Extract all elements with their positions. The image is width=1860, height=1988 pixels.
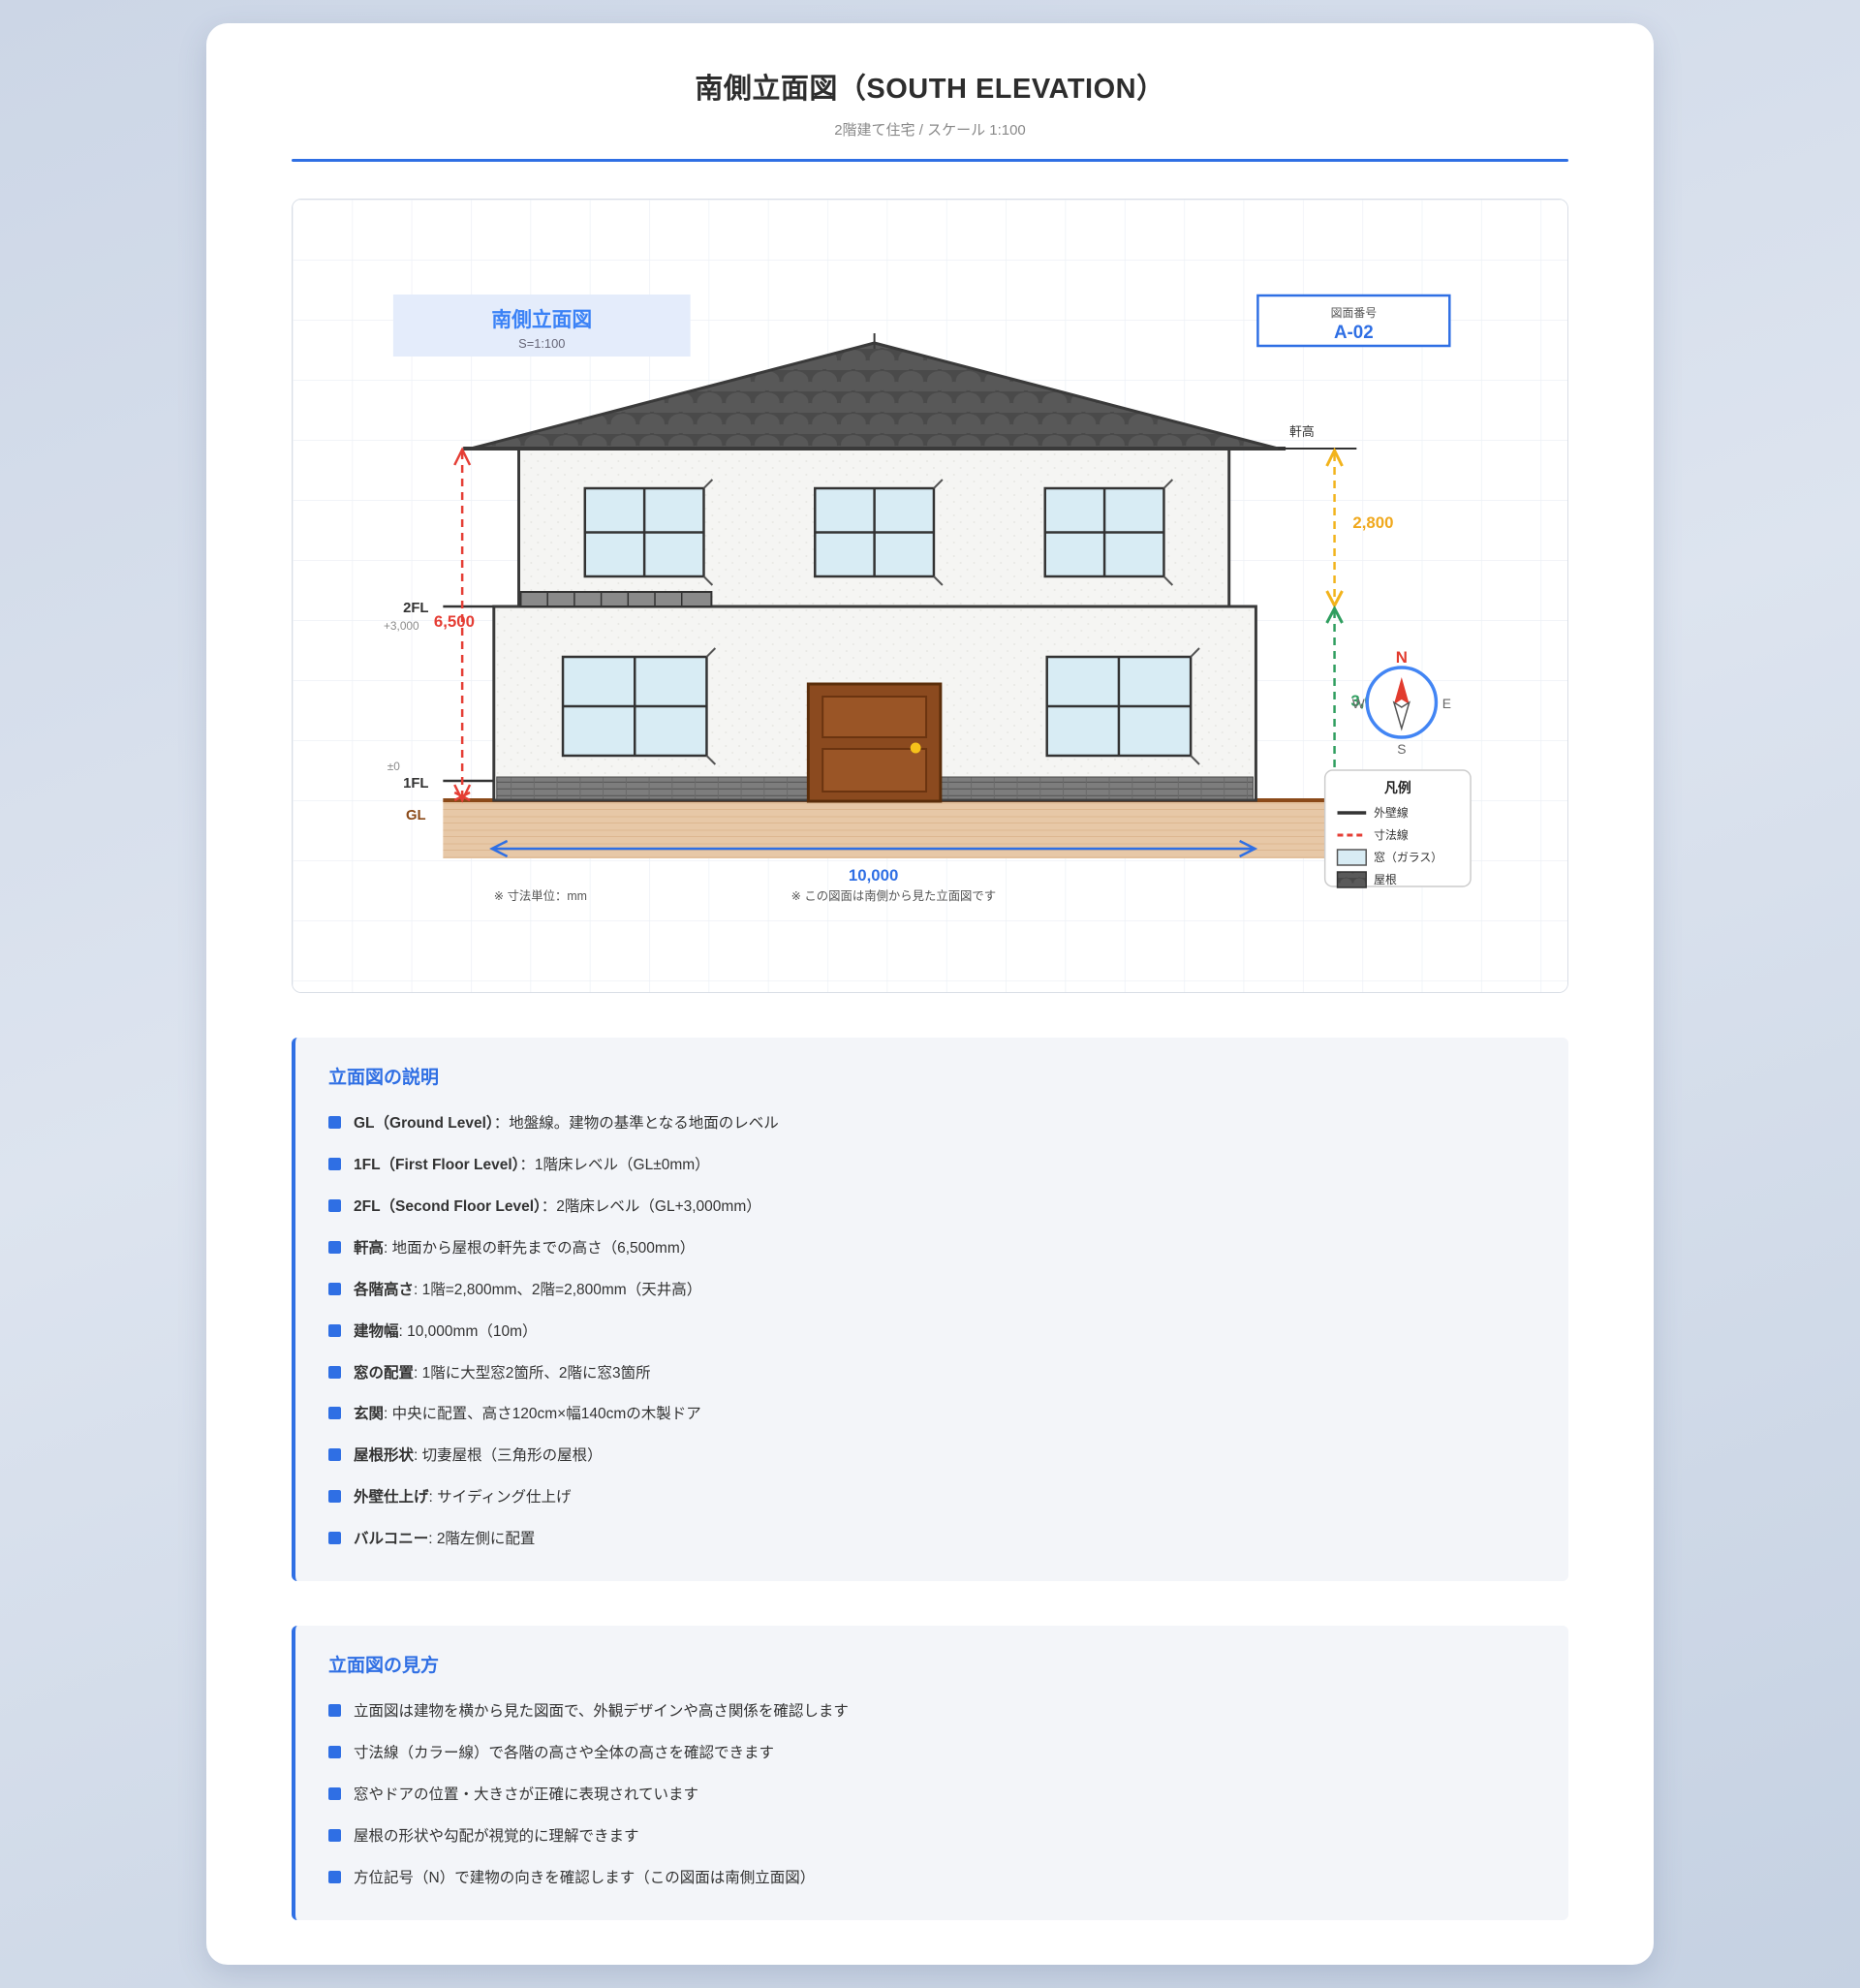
fl1-offset: ±0 xyxy=(387,760,400,773)
list-item: 窓やドアの位置・大きさが正確に表現されています xyxy=(328,1786,1535,1806)
document-card: 南側立面図（SOUTH ELEVATION） 2階建て住宅 / スケール 1:1… xyxy=(206,23,1654,1965)
window-1f-right xyxy=(1047,648,1199,764)
list-item: 1FL（First Floor Level）：1階床レベル（GL±0mm） xyxy=(328,1156,1535,1176)
list-item: 屋根形状: 切妻屋根（三角形の屋根） xyxy=(328,1446,1535,1467)
bullet-icon xyxy=(328,1283,341,1295)
drawing-number-box: 図面番号 A-02 xyxy=(1257,295,1449,346)
note-view: ※ この図面は南側から見た立面図です xyxy=(791,888,996,903)
section-elevation-description: 立面図の説明 GL（Ground Level）：地盤線。建物の基準となる地面のレ… xyxy=(292,1038,1568,1581)
window-2f-right xyxy=(1045,480,1173,585)
list-item: 軒高: 地面から屋根の軒先までの高さ（6,500mm） xyxy=(328,1239,1535,1259)
gl-label: GL xyxy=(406,807,426,823)
balcony-railing xyxy=(520,592,711,606)
compass-south: S xyxy=(1397,741,1406,757)
list-item: 寸法線（カラー線）で各階の高さや全体の高さを確認できます xyxy=(328,1744,1535,1764)
section-title: 立面図の説明 xyxy=(328,1063,1535,1089)
total-height-value: 6,500 xyxy=(434,612,475,631)
list-item: バルコニー: 2階左側に配置 xyxy=(328,1530,1535,1550)
window-2f-left xyxy=(585,480,713,585)
drawing-label-scale: S=1:100 xyxy=(518,336,565,351)
page-title: 南側立面図（SOUTH ELEVATION） xyxy=(292,66,1568,107)
drawing-number-caption: 図面番号 xyxy=(1331,306,1378,320)
bullet-icon xyxy=(328,1829,341,1842)
second-floor-windows xyxy=(585,480,1173,585)
compass-north: N xyxy=(1396,648,1408,667)
legend-window-swatch xyxy=(1338,850,1367,865)
bullet-icon xyxy=(328,1366,341,1379)
list-item: GL（Ground Level）：地盤線。建物の基準となる地面のレベル xyxy=(328,1114,1535,1134)
bullet-icon xyxy=(328,1704,341,1717)
legend-dim-line-label: 寸法線 xyxy=(1374,828,1409,842)
bullet-icon xyxy=(328,1116,341,1129)
window-2f-center xyxy=(815,480,943,585)
elevation-drawing-panel: 南側立面図 S=1:100 図面番号 A-02 xyxy=(292,199,1568,993)
legend-wall-line-label: 外壁線 xyxy=(1374,806,1409,820)
legend-roof-swatch xyxy=(1338,872,1367,887)
door-knob xyxy=(911,743,921,754)
fl2-offset: +3,000 xyxy=(384,619,419,633)
list-item: 立面図は建物を横から見た図面で、外観デザインや高さ関係を確認します xyxy=(328,1702,1535,1723)
bullet-icon xyxy=(328,1490,341,1503)
bullet-icon xyxy=(328,1448,341,1461)
bullet-icon xyxy=(328,1158,341,1170)
header-rule xyxy=(292,159,1568,162)
compass-west: W xyxy=(1352,696,1366,711)
header: 南側立面図（SOUTH ELEVATION） 2階建て住宅 / スケール 1:1… xyxy=(292,66,1568,162)
bullet-icon xyxy=(328,1871,341,1883)
bullet-icon xyxy=(328,1532,341,1544)
compass-east: E xyxy=(1442,696,1451,711)
list-item: 窓の配置: 1階に大型窓2箇所、2階に窓3箇所 xyxy=(328,1364,1535,1384)
window-1f-left xyxy=(563,648,715,764)
list-item: 2FL（Second Floor Level）：2階床レベル（GL+3,000m… xyxy=(328,1197,1535,1218)
page-subtitle: 2階建て住宅 / スケール 1:100 xyxy=(292,119,1568,140)
legend: 凡例 外壁線 寸法線 窓（ガラス） 屋根 xyxy=(1325,770,1471,887)
bullet-icon xyxy=(328,1241,341,1254)
drawing-label-box: 南側立面図 S=1:100 xyxy=(393,295,691,357)
bullet-icon xyxy=(328,1746,341,1758)
list-item: 玄関: 中央に配置、高さ120cm×幅140cmの木製ドア xyxy=(328,1405,1535,1425)
description-list: GL（Ground Level）：地盤線。建物の基準となる地面のレベル 1FL（… xyxy=(328,1114,1535,1550)
fl2-label: 2FL xyxy=(403,600,428,616)
legend-roof-label: 屋根 xyxy=(1374,873,1397,886)
building-width-value: 10,000 xyxy=(849,866,898,885)
legend-title: 凡例 xyxy=(1384,780,1411,795)
note-unit: ※ 寸法単位：mm xyxy=(494,888,587,903)
how-to-read-list: 立面図は建物を横から見た図面で、外観デザインや高さ関係を確認します 寸法線（カラ… xyxy=(328,1702,1535,1889)
fl1-label: 1FL xyxy=(403,775,428,792)
section-title: 立面図の見方 xyxy=(328,1651,1535,1677)
elevation-drawing: 南側立面図 S=1:100 図面番号 A-02 xyxy=(293,200,1567,992)
bullet-icon xyxy=(328,1407,341,1419)
list-item: 建物幅: 10,000mm（10m） xyxy=(328,1322,1535,1343)
bullet-icon xyxy=(328,1199,341,1212)
floor2-height-value: 2,800 xyxy=(1352,513,1393,532)
legend-window-label: 窓（ガラス） xyxy=(1374,851,1442,864)
list-item: 方位記号（N）で建物の向きを確認します（この図面は南側立面図） xyxy=(328,1869,1535,1889)
bullet-icon xyxy=(328,1787,341,1800)
eave-label-text: 軒高 xyxy=(1289,424,1315,439)
drawing-label-title: 南側立面図 xyxy=(491,308,592,331)
list-item: 外壁仕上げ: サイディング仕上げ xyxy=(328,1488,1535,1508)
drawing-number-value: A-02 xyxy=(1334,323,1374,343)
list-item: 各階高さ: 1階=2,800mm、2階=2,800mm（天井高） xyxy=(328,1281,1535,1301)
section-how-to-read: 立面図の見方 立面図は建物を横から見た図面で、外観デザインや高さ関係を確認します… xyxy=(292,1626,1568,1920)
entrance-door xyxy=(808,684,941,801)
bullet-icon xyxy=(328,1324,341,1337)
list-item: 屋根の形状や勾配が視覚的に理解できます xyxy=(328,1827,1535,1848)
